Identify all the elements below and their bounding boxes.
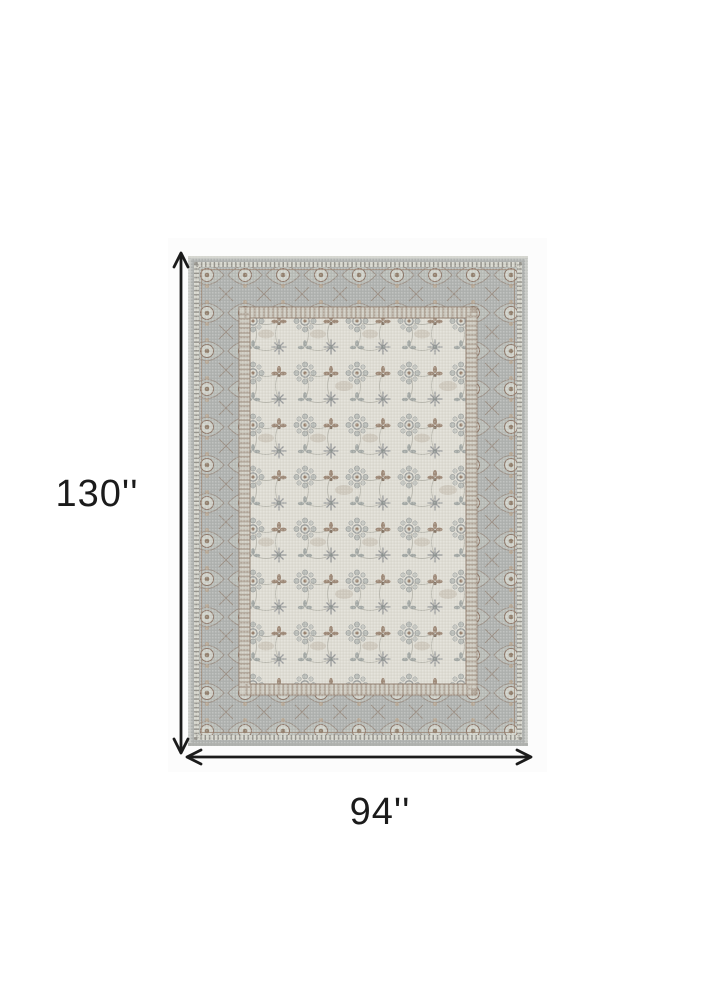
width-dimension-arrow: [184, 746, 534, 768]
height-dimension-label: 130'': [27, 471, 167, 517]
rug-top-edge-highlight: [188, 256, 528, 258]
height-dimension-arrow: [170, 250, 192, 756]
rug-image: [188, 256, 528, 746]
rug-weave-texture: [188, 256, 528, 746]
width-dimension-label: 94'': [310, 789, 450, 835]
page-background: 130'' 94'': [0, 0, 715, 1000]
